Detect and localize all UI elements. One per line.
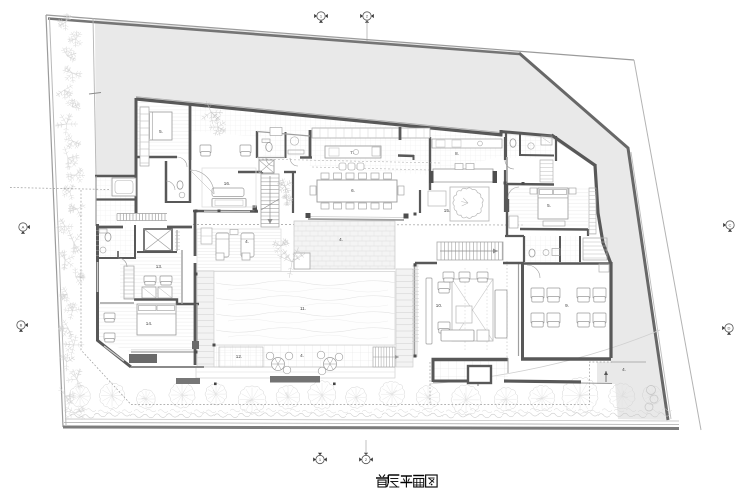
- svg-text:13.: 13.: [156, 264, 162, 269]
- svg-text:9.: 9.: [565, 303, 569, 308]
- svg-text:8.: 8.: [455, 151, 459, 156]
- svg-text:4.: 4.: [300, 353, 304, 358]
- svg-text:14.: 14.: [146, 321, 152, 326]
- svg-text:6.: 6.: [351, 188, 355, 193]
- svg-text:7.: 7.: [350, 150, 354, 155]
- svg-text:10.: 10.: [436, 303, 442, 308]
- svg-text:5.: 5.: [547, 203, 551, 208]
- svg-text:A: A: [22, 225, 25, 230]
- svg-text:4.: 4.: [622, 367, 626, 372]
- svg-text:4.: 4.: [339, 237, 343, 242]
- svg-text:16.: 16.: [224, 181, 230, 186]
- svg-text:12.: 12.: [236, 354, 242, 359]
- svg-text:15.: 15.: [444, 208, 450, 213]
- svg-text:B: B: [20, 323, 23, 328]
- svg-text:5.: 5.: [159, 129, 163, 134]
- svg-text:C: C: [729, 223, 732, 228]
- svg-text:4.: 4.: [245, 239, 249, 244]
- svg-text:11.: 11.: [300, 306, 306, 311]
- svg-text:D: D: [728, 326, 731, 331]
